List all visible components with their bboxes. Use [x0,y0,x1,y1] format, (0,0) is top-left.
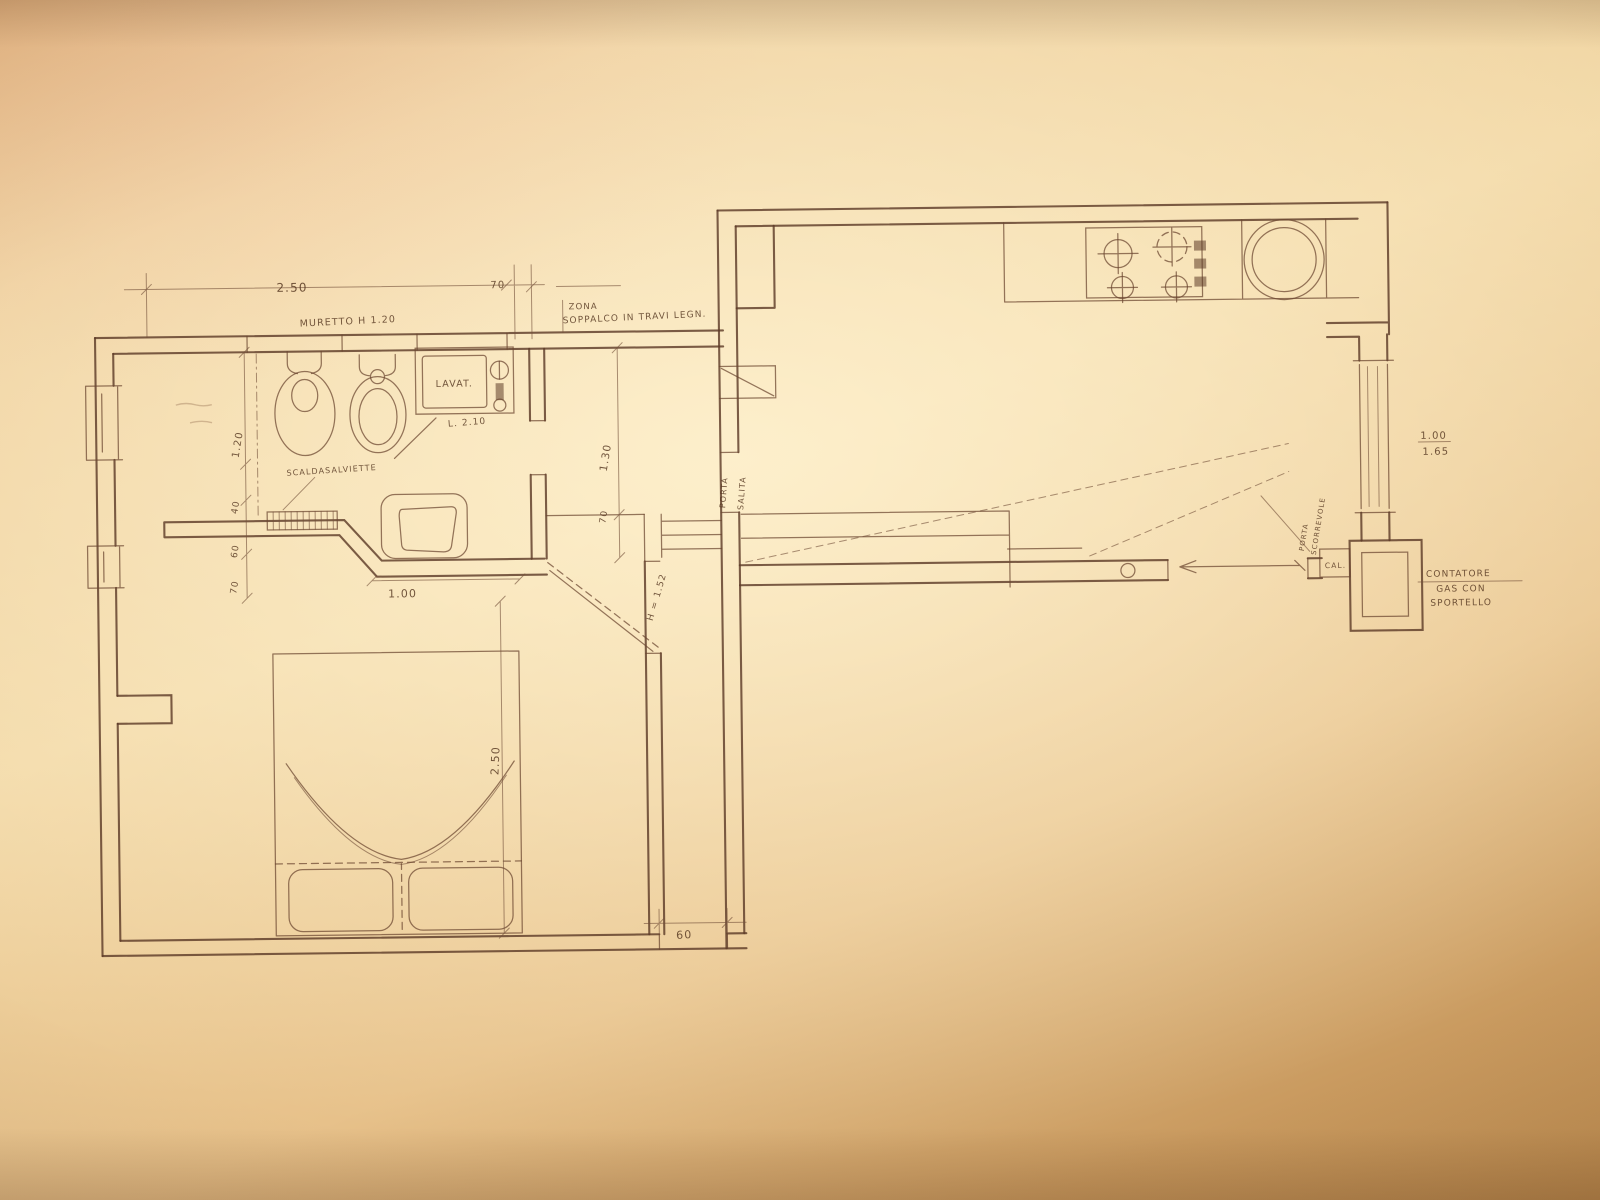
washing-machine [393,347,514,458]
label-cal: CAL. [1325,561,1346,570]
label-salita: SALITA [736,476,748,510]
dim-top-width: 2.50 [276,281,307,295]
label-porta-scorrevole-a: PORTA [1298,523,1310,552]
label-lavatrice-l: L. 2.10 [448,417,487,430]
dim-bed-width: 2.50 [488,746,502,775]
plan-texts: 2.50 70 MURETTO H 1.20 ZONA SOPPALCO IN … [225,266,1496,947]
bed [273,651,522,936]
dim-left-a: 1.20 [231,431,246,459]
label-zona: ZONA [569,302,598,312]
kitchen-counter [1004,219,1359,304]
dim-bath-len: 1.30 [598,443,614,472]
label-scaldasalviette: SCALDASALVIETTE [286,463,377,478]
dim-left-b: 40 [230,500,242,515]
towel-radiator [267,477,338,530]
dim-left-d: 70 [229,580,241,595]
walls-left-block [85,330,747,956]
bathroom-fixtures [256,347,516,560]
kitchen-sink [1244,219,1325,300]
dim-window-sill: 1.65 [1422,447,1449,458]
dim-window-width: 1.00 [1420,431,1447,442]
label-contatore-1: CONTATORE [1426,569,1491,580]
bath-partition-line [256,354,258,519]
label-contatore-2: GAS CON [1436,584,1486,595]
label-contatore-3: SPORTELLO [1430,598,1492,609]
floor-plan-photo: 2.50 70 MURETTO H 1.20 ZONA SOPPALCO IN … [0,0,1600,1200]
floor-plan-svg: 2.50 70 MURETTO H 1.20 ZONA SOPPALCO IN … [0,0,1600,1200]
label-porta-scorrevole-b: SCORREVOLE [1310,497,1327,556]
dimension-lines [124,253,1526,943]
bidet-fixture [349,354,406,453]
dim-passage: 60 [676,928,693,942]
wc-fixture [274,351,335,456]
label-altezza: H = 1.52 [646,572,669,622]
washbasin [381,494,468,559]
hob-burners [1098,228,1192,303]
label-lavatrice: LAVAT. [436,378,473,389]
dim-bath-width: 1.00 [388,587,417,600]
stairs-to-loft [546,513,723,652]
label-muretto: MURETTO H 1.20 [299,314,396,330]
faint-note-marks [176,403,212,423]
label-soppalco: SOPPALCO IN TRAVI LEGN. [563,310,707,327]
dim-left-c: 60 [230,544,242,559]
walls-right-block [161,202,1427,955]
label-porta: PORTA [718,477,729,509]
dim-top-pier: 70 [490,280,505,291]
dim-bath-door: 70 [598,509,610,524]
